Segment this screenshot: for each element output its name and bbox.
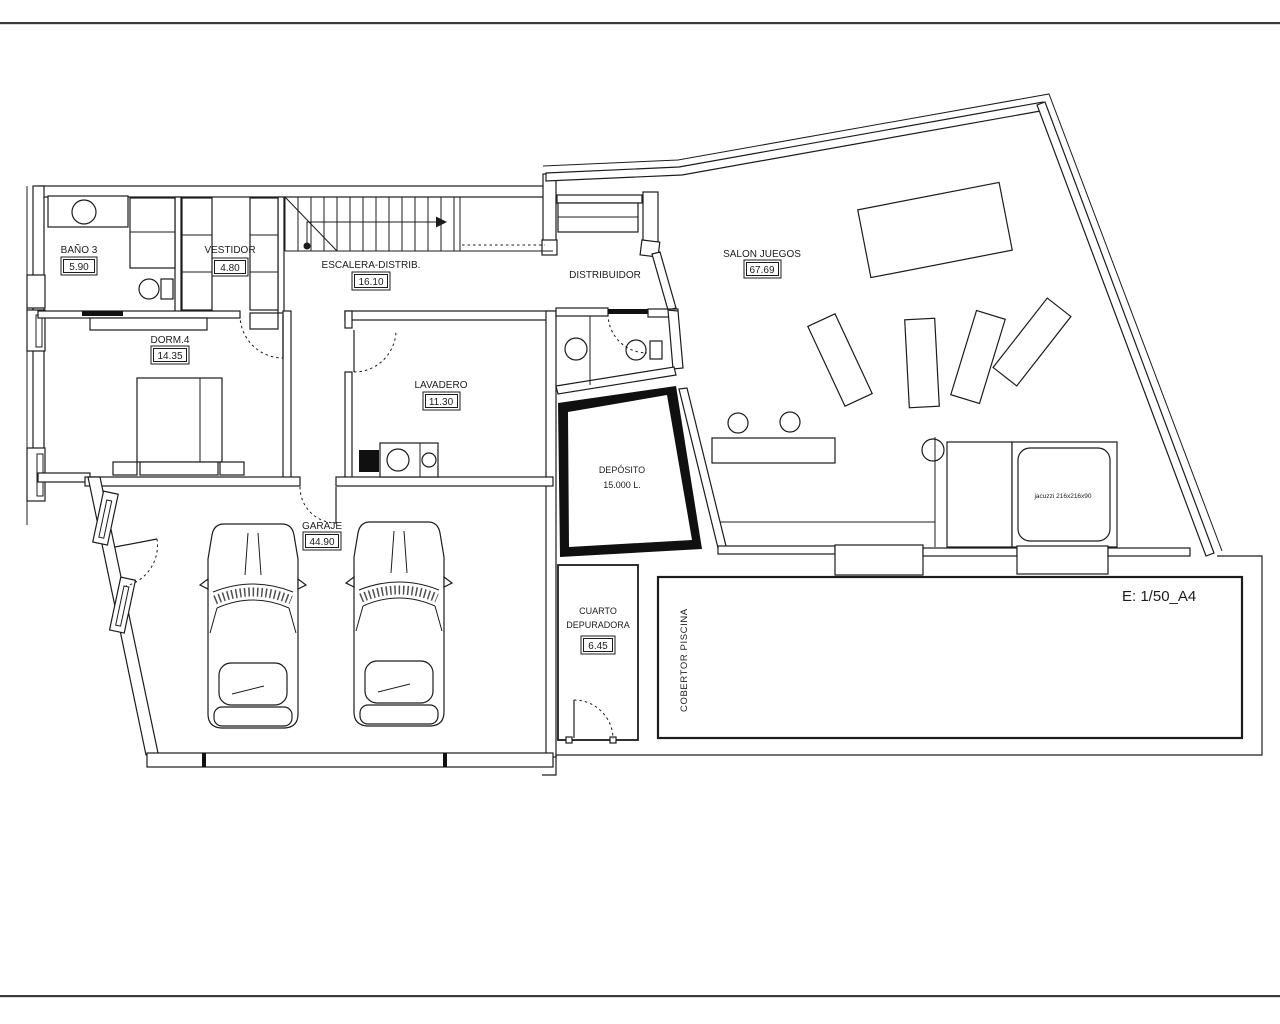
room-label-deposito: DEPÓSITO xyxy=(599,465,645,475)
area-box-bano3: 5.90 xyxy=(61,257,97,275)
room-label-lavadero: LAVADERO xyxy=(415,380,468,391)
lounger-3 xyxy=(951,311,1005,404)
floor-plan-page: BAÑO 3 5.90 VESTIDOR 4.80 ESCALERA-DISTR… xyxy=(0,0,1280,1024)
car-2 xyxy=(346,522,452,726)
staircase xyxy=(285,197,553,251)
area-box-lavadero: 11.30 xyxy=(423,392,460,410)
svg-text:4.80: 4.80 xyxy=(220,263,240,274)
page-bottom-border xyxy=(0,995,1280,997)
room-label-distribuidor: DISTRIBUIDOR xyxy=(569,270,641,281)
lounger-2 xyxy=(905,318,940,407)
room-label-salon-juegos: SALON JUEGOS xyxy=(723,249,801,260)
svg-text:14.35: 14.35 xyxy=(157,351,182,362)
svg-text:44.90: 44.90 xyxy=(309,537,334,548)
deposito-capacity: 15.000 L. xyxy=(603,480,641,490)
lounger-1 xyxy=(808,314,872,406)
room-aseo xyxy=(556,308,683,394)
room-salon-juegos xyxy=(712,182,1190,575)
room-label-dorm4: DORM.4 xyxy=(151,335,190,346)
room-label-garaje: GARAJE xyxy=(302,521,342,532)
area-box-dorm4: 14.35 xyxy=(151,346,189,364)
terrace-step-1 xyxy=(835,545,923,575)
svg-text:11.30: 11.30 xyxy=(429,397,454,408)
svg-text:67.69: 67.69 xyxy=(749,265,774,276)
pool-cover-label: COBERTOR PISCINA xyxy=(679,608,690,712)
terrace-step-2 xyxy=(1017,546,1108,574)
room-label-vestidor: VESTIDOR xyxy=(204,245,255,256)
area-box-vestidor: 4.80 xyxy=(212,258,248,276)
jacuzzi-label: jacuzzi 216x216x90 xyxy=(1033,493,1091,500)
car-1 xyxy=(200,524,306,728)
scale-label: E: 1/50_A4 xyxy=(1122,588,1196,605)
svg-text:6.45: 6.45 xyxy=(588,641,608,652)
bar-counter xyxy=(712,438,835,463)
area-box-garaje: 44.90 xyxy=(303,532,341,550)
floor-plan-svg: BAÑO 3 5.90 VESTIDOR 4.80 ESCALERA-DISTR… xyxy=(0,0,1280,1024)
area-box-escalera: 16.10 xyxy=(352,272,390,290)
area-box-salon: 67.69 xyxy=(744,260,781,278)
room-label-cuarto-1: CUARTO xyxy=(579,606,617,616)
page-top-border xyxy=(0,22,1280,24)
lounger-4 xyxy=(993,298,1071,386)
room-label-escalera: ESCALERA-DISTRIB. xyxy=(322,260,421,271)
room-vestidor xyxy=(182,198,283,358)
svg-text:16.10: 16.10 xyxy=(358,277,383,288)
svg-text:5.90: 5.90 xyxy=(69,262,89,273)
billiard-table xyxy=(858,182,1013,277)
room-label-cuarto-2: DEPURADORA xyxy=(566,620,630,630)
room-label-bano3: BAÑO 3 xyxy=(61,243,98,256)
